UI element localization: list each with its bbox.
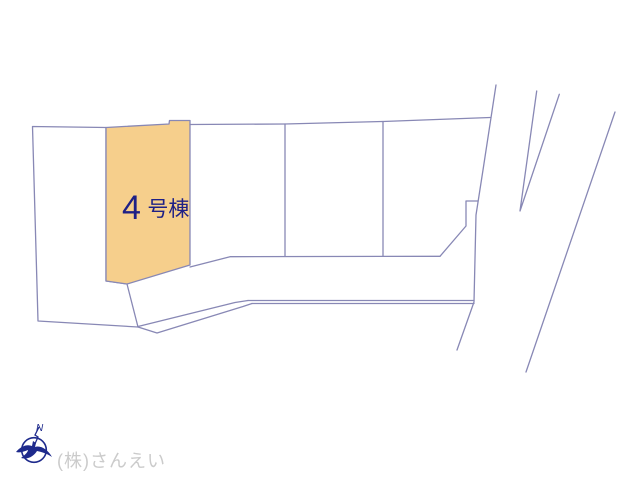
compass-icon: N bbox=[16, 423, 52, 462]
compass-north-label: N bbox=[36, 423, 44, 434]
site-plan-page: 4 号棟 N (株)さんえい bbox=[0, 0, 640, 480]
road-band-lower-edge bbox=[138, 304, 252, 334]
company-watermark: (株)さんえい bbox=[57, 447, 166, 473]
road-band-upper-edge bbox=[138, 301, 248, 327]
plan-lines bbox=[33, 85, 616, 372]
site-plan-drawing: 4 号棟 N bbox=[0, 0, 640, 480]
lot-label-number: 4 bbox=[122, 189, 141, 227]
far-right-diagonal bbox=[526, 112, 615, 372]
lot-row-top-boundary bbox=[190, 118, 490, 125]
lot-corner-step bbox=[440, 201, 478, 256]
lot-label-suffix: 号棟 bbox=[147, 198, 189, 221]
boundary-sliver bbox=[520, 91, 559, 211]
site-right-boundary bbox=[457, 85, 496, 350]
lot-row-bottom-boundary bbox=[190, 256, 440, 267]
